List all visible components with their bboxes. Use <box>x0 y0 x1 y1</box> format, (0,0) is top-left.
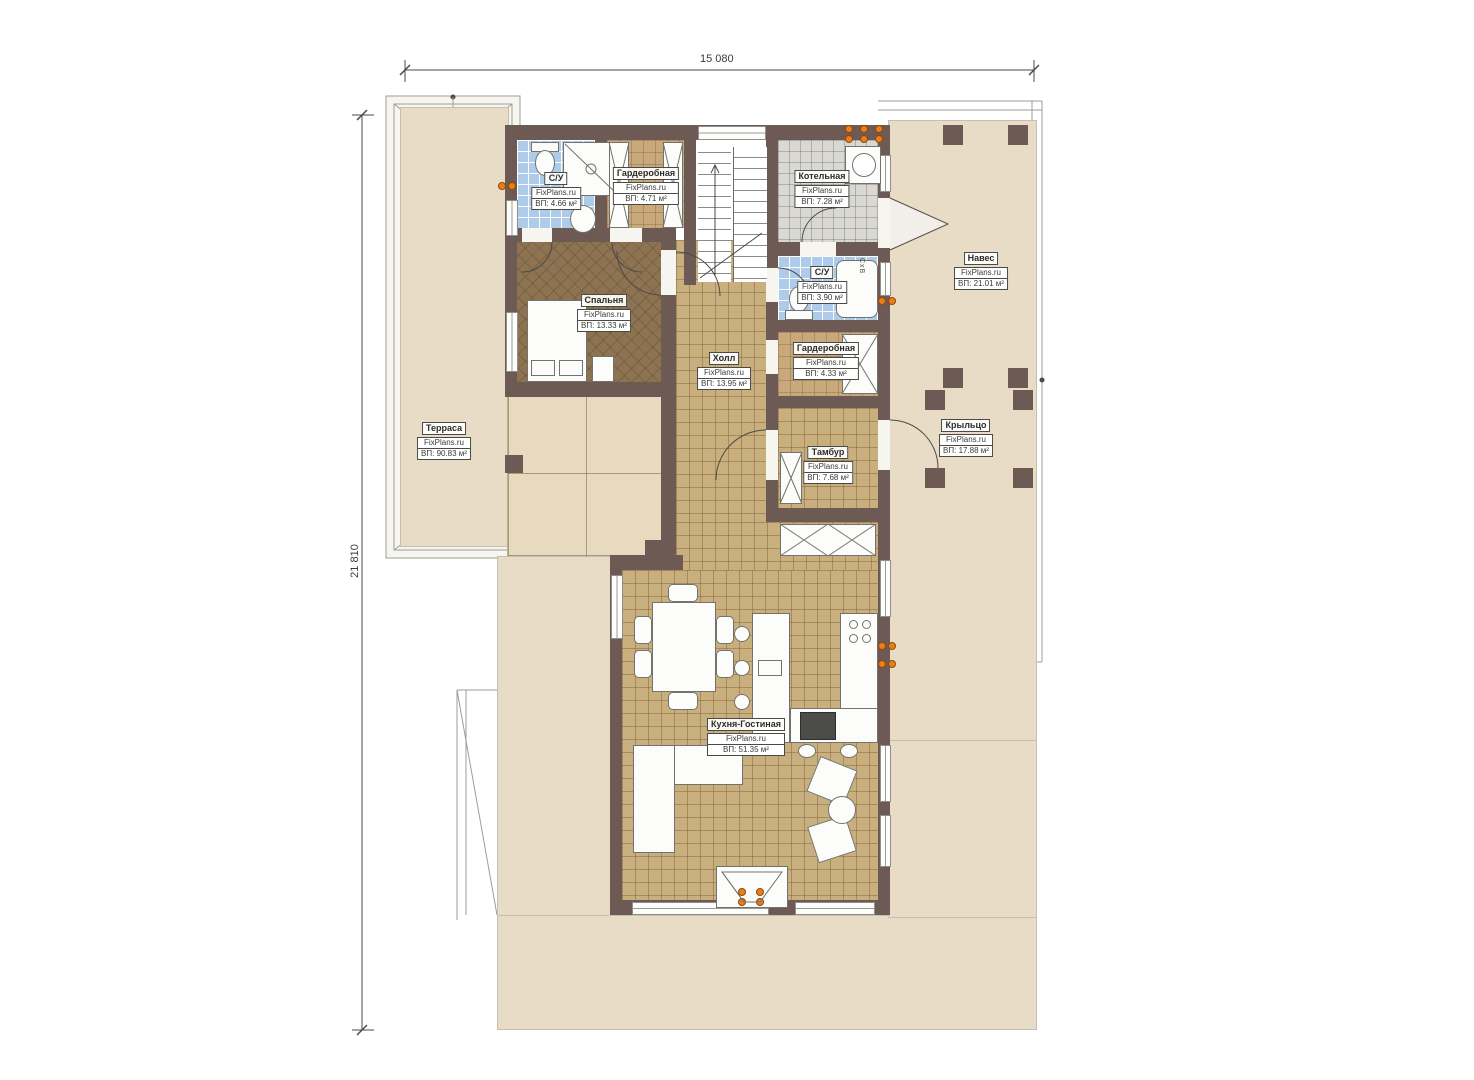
room-brand: FixPlans.ru <box>795 186 848 197</box>
room-info: FixPlans.ru ВП: 51.35 м² <box>707 733 785 756</box>
room-label-kitchen-living: Кухня-Гостиная FixPlans.ru ВП: 51.35 м² <box>707 714 785 756</box>
room-brand: FixPlans.ru <box>698 368 750 379</box>
vent-marker <box>498 182 516 190</box>
chair <box>716 650 734 678</box>
column <box>505 455 523 473</box>
room-info: FixPlans.ru ВП: 4.66 м² <box>531 187 581 210</box>
kitchen-sink <box>758 660 782 676</box>
patio-bottom <box>497 915 1037 1030</box>
chair <box>634 650 652 678</box>
stair-flight <box>698 142 731 282</box>
coffee-table <box>828 796 856 824</box>
room-brand: FixPlans.ru <box>940 435 992 446</box>
chair <box>668 692 698 710</box>
toilet <box>785 310 813 320</box>
room-info: FixPlans.ru ВП: 7.28 м² <box>794 185 849 208</box>
room-area: ВП: 13.95 м² <box>698 379 750 389</box>
room-name: С/У <box>811 266 834 279</box>
window <box>795 902 875 915</box>
door-opening <box>610 228 642 242</box>
column <box>943 125 963 145</box>
burner <box>849 620 858 629</box>
terrace-inner <box>507 390 665 560</box>
room-info: FixPlans.ru ВП: 4.71 м² <box>613 182 679 205</box>
chair <box>668 584 698 602</box>
wall <box>778 396 890 408</box>
room-label-canopy: Навес FixPlans.ru ВП: 21.01 м² <box>954 248 1008 290</box>
room-name: Тамбур <box>808 446 849 459</box>
fireplace <box>716 866 788 908</box>
column <box>1008 125 1028 145</box>
window <box>611 575 623 639</box>
terrace-area <box>400 107 509 547</box>
column <box>925 468 945 488</box>
window <box>880 262 891 296</box>
hall-floor <box>676 240 766 570</box>
door-opening <box>766 268 778 302</box>
nightstand <box>592 356 614 382</box>
room-area: ВП: 21.01 м² <box>955 279 1007 289</box>
cooktop <box>800 712 836 740</box>
room-info: FixPlans.ru ВП: 4.33 м² <box>793 357 859 380</box>
bar-stool <box>840 744 858 758</box>
room-label-vestibule: Тамбур FixPlans.ru ВП: 7.68 м² <box>803 442 853 484</box>
room-brand: FixPlans.ru <box>614 183 678 194</box>
washing-machine-drum <box>852 153 876 177</box>
wall <box>684 140 696 285</box>
column <box>1013 468 1033 488</box>
room-name: Гардеробная <box>793 342 859 355</box>
vent-marker <box>845 125 853 143</box>
column <box>1013 390 1033 410</box>
room-brand: FixPlans.ru <box>794 358 858 369</box>
vent-marker <box>756 888 764 906</box>
room-brand: FixPlans.ru <box>708 734 784 745</box>
shaft-label: СxВ <box>858 258 865 274</box>
door-opening <box>800 242 836 256</box>
bar-stool <box>734 626 750 642</box>
window <box>880 745 891 802</box>
room-brand: FixPlans.ru <box>418 438 470 449</box>
sofa <box>633 745 675 853</box>
room-name: Холл <box>709 352 740 365</box>
column <box>1008 368 1028 388</box>
window <box>880 155 891 192</box>
vent-marker <box>738 888 746 906</box>
room-info: FixPlans.ru ВП: 13.33 м² <box>577 309 631 332</box>
room-area: ВП: 4.66 м² <box>532 199 580 209</box>
room-area: ВП: 4.71 м² <box>614 194 678 204</box>
room-brand: FixPlans.ru <box>798 282 846 293</box>
room-name: Гардеробная <box>613 167 679 180</box>
room-label-porch: Крыльцо FixPlans.ru ВП: 17.88 м² <box>939 415 993 457</box>
room-brand: FixPlans.ru <box>578 310 630 321</box>
room-area: ВП: 90.83 м² <box>418 449 470 459</box>
room-name: С/У <box>545 172 568 185</box>
wall <box>610 555 683 570</box>
room-label-bathroom-2: С/У FixPlans.ru ВП: 3.90 м² <box>797 262 847 304</box>
room-area: ВП: 7.28 м² <box>795 197 848 207</box>
bar-stool <box>734 694 750 710</box>
burner <box>849 634 858 643</box>
room-area: ВП: 7.68 м² <box>804 473 852 483</box>
room-name: Крыльцо <box>942 419 991 432</box>
wardrobe <box>780 452 802 504</box>
window <box>506 200 518 236</box>
room-info: FixPlans.ru ВП: 21.01 м² <box>954 267 1008 290</box>
room-info: FixPlans.ru ВП: 17.88 м² <box>939 434 993 457</box>
vent-marker <box>875 125 883 143</box>
stair-flight <box>733 147 767 282</box>
room-brand: FixPlans.ru <box>532 188 580 199</box>
room-brand: FixPlans.ru <box>804 462 852 473</box>
dining-table <box>652 602 716 692</box>
room-area: ВП: 4.33 м² <box>794 369 858 379</box>
vent-marker <box>878 660 896 668</box>
room-name: Кухня-Гостиная <box>707 718 785 731</box>
window <box>880 560 891 617</box>
room-area: ВП: 51.35 м² <box>708 745 784 755</box>
closet <box>780 524 876 556</box>
room-info: FixPlans.ru ВП: 13.95 м² <box>697 367 751 390</box>
window <box>698 126 766 140</box>
chair <box>634 616 652 644</box>
room-label-wardrobe-2: Гардеробная FixPlans.ru ВП: 4.33 м² <box>793 338 859 380</box>
bar-stool <box>798 744 816 758</box>
door-opening <box>766 340 778 374</box>
room-label-wardrobe-1: Гардеробная FixPlans.ru ВП: 4.71 м² <box>613 163 679 205</box>
door-opening <box>661 250 676 295</box>
door-opening <box>878 198 890 248</box>
room-info: FixPlans.ru ВП: 7.68 м² <box>803 461 853 484</box>
patio-right <box>888 740 1037 918</box>
door-opening <box>878 420 890 470</box>
window <box>506 312 518 372</box>
chair <box>716 616 734 644</box>
column <box>943 368 963 388</box>
vent-marker <box>878 642 896 650</box>
burner <box>862 634 871 643</box>
floor-plan: 15 080 21 810 СxВ С/У FixPlans.ru ВП: 4.… <box>0 0 1474 1080</box>
room-label-bathroom-1: С/У FixPlans.ru ВП: 4.66 м² <box>531 168 581 210</box>
room-label-hall: Холл FixPlans.ru ВП: 13.95 м² <box>697 348 751 390</box>
room-area: ВП: 17.88 м² <box>940 446 992 456</box>
window <box>880 815 891 867</box>
room-name: Котельная <box>794 170 849 183</box>
burner <box>862 620 871 629</box>
room-name: Терраса <box>422 422 466 435</box>
room-info: FixPlans.ru ВП: 90.83 м² <box>417 437 471 460</box>
wall <box>505 382 676 397</box>
pillow <box>559 360 583 376</box>
room-area: ВП: 3.90 м² <box>798 293 846 303</box>
door-opening <box>522 228 552 242</box>
room-info: FixPlans.ru ВП: 3.90 м² <box>797 281 847 304</box>
bar-stool <box>734 660 750 676</box>
room-area: ВП: 13.33 м² <box>578 321 630 331</box>
column <box>925 390 945 410</box>
room-name: Навес <box>964 252 999 265</box>
wall <box>778 508 890 522</box>
room-label-terrace: Терраса FixPlans.ru ВП: 90.83 м² <box>417 418 471 460</box>
dimension-height-label: 21 810 <box>349 544 361 578</box>
room-label-boiler: Котельная FixPlans.ru ВП: 7.28 м² <box>794 166 849 208</box>
dimension-width-label: 15 080 <box>700 53 734 65</box>
door-opening <box>766 430 778 480</box>
room-label-bedroom: Спальня FixPlans.ru ВП: 13.33 м² <box>577 290 631 332</box>
room-name: Спальня <box>581 294 628 307</box>
pillow <box>531 360 555 376</box>
vent-marker <box>860 125 868 143</box>
vent-marker <box>878 297 896 305</box>
room-brand: FixPlans.ru <box>955 268 1007 279</box>
wall <box>778 320 890 332</box>
